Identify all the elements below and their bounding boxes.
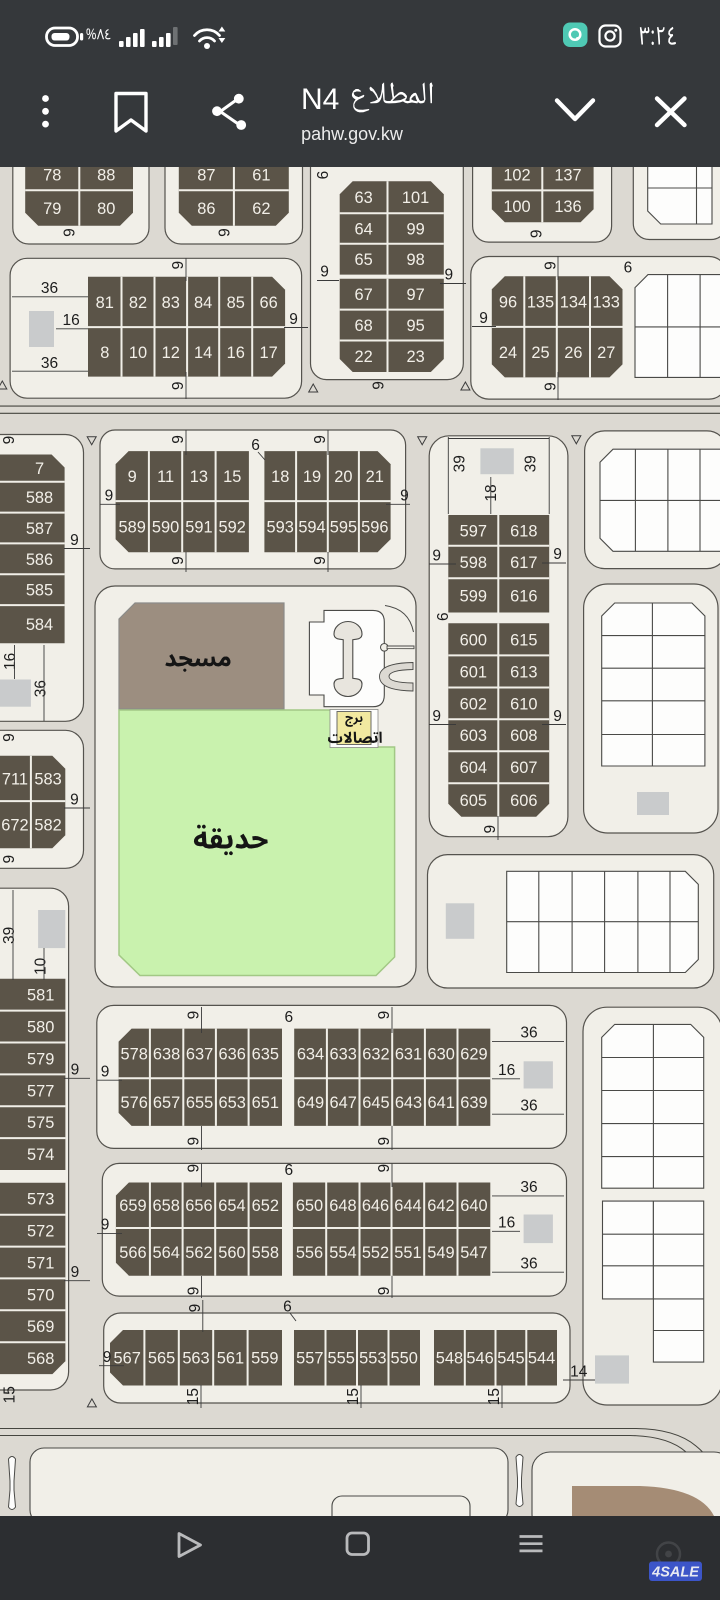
svg-text:9: 9 — [479, 310, 488, 327]
svg-text:15: 15 — [2, 1386, 19, 1403]
svg-text:62: 62 — [252, 200, 270, 218]
svg-text:39: 39 — [452, 455, 469, 472]
svg-text:590: 590 — [152, 519, 179, 537]
svg-text:9: 9 — [71, 1264, 80, 1281]
svg-text:15: 15 — [185, 1388, 202, 1405]
svg-text:22: 22 — [354, 348, 372, 366]
svg-text:134: 134 — [560, 294, 587, 312]
svg-text:19: 19 — [303, 468, 321, 486]
svg-text:560: 560 — [218, 1244, 245, 1262]
svg-text:646: 646 — [362, 1197, 389, 1215]
svg-text:656: 656 — [185, 1197, 212, 1215]
svg-text:565: 565 — [148, 1350, 175, 1368]
svg-text:617: 617 — [510, 554, 537, 572]
svg-text:566: 566 — [119, 1244, 146, 1262]
svg-text:133: 133 — [593, 294, 620, 312]
svg-text:574: 574 — [27, 1146, 54, 1164]
svg-text:9: 9 — [70, 791, 79, 808]
svg-text:631: 631 — [395, 1045, 422, 1063]
svg-text:100: 100 — [503, 198, 530, 216]
svg-text:9: 9 — [170, 381, 187, 390]
svg-text:39: 39 — [1, 927, 18, 944]
svg-text:634: 634 — [297, 1045, 324, 1063]
svg-text:9: 9 — [376, 1287, 393, 1296]
svg-text:87: 87 — [197, 167, 215, 185]
svg-text:82: 82 — [129, 294, 147, 312]
svg-text:9: 9 — [170, 435, 187, 444]
svg-text:639: 639 — [460, 1094, 487, 1112]
svg-text:85: 85 — [227, 294, 245, 312]
svg-text:649: 649 — [297, 1094, 324, 1112]
svg-text:9: 9 — [187, 1304, 204, 1313]
svg-text:23: 23 — [406, 348, 424, 366]
svg-text:9: 9 — [400, 488, 409, 505]
svg-text:14: 14 — [570, 1363, 588, 1380]
svg-text:577: 577 — [27, 1082, 54, 1100]
svg-text:15: 15 — [486, 1388, 503, 1405]
svg-text:554: 554 — [329, 1244, 356, 1262]
svg-text:580: 580 — [27, 1019, 54, 1037]
svg-text:568: 568 — [27, 1350, 54, 1368]
svg-text:608: 608 — [510, 727, 537, 745]
svg-text:615: 615 — [510, 631, 537, 649]
svg-text:98: 98 — [406, 251, 424, 269]
svg-text:136: 136 — [554, 198, 581, 216]
svg-text:546: 546 — [466, 1350, 493, 1368]
svg-text:589: 589 — [119, 519, 146, 537]
svg-text:630: 630 — [428, 1045, 455, 1063]
svg-text:555: 555 — [328, 1350, 355, 1368]
svg-text:558: 558 — [252, 1244, 279, 1262]
svg-text:585: 585 — [26, 582, 53, 600]
svg-text:9: 9 — [432, 708, 441, 725]
svg-text:635: 635 — [252, 1045, 279, 1063]
svg-text:9: 9 — [542, 261, 559, 270]
svg-text:549: 549 — [427, 1244, 454, 1262]
svg-text:613: 613 — [510, 663, 537, 681]
svg-text:551: 551 — [394, 1244, 421, 1262]
svg-text:9: 9 — [289, 311, 298, 328]
svg-text:25: 25 — [531, 344, 549, 362]
svg-text:N4: N4 — [301, 83, 339, 116]
svg-text:26: 26 — [564, 344, 582, 362]
svg-text:562: 562 — [185, 1244, 212, 1262]
svg-text:572: 572 — [27, 1223, 54, 1241]
svg-text:578: 578 — [121, 1045, 148, 1063]
svg-text:9: 9 — [128, 468, 137, 486]
svg-text:36: 36 — [41, 355, 58, 372]
svg-text:21: 21 — [366, 468, 384, 486]
svg-text:632: 632 — [362, 1045, 389, 1063]
svg-text:579: 579 — [27, 1050, 54, 1068]
svg-text:9: 9 — [186, 1011, 203, 1020]
svg-text:593: 593 — [267, 519, 294, 537]
svg-text:644: 644 — [394, 1197, 421, 1215]
svg-text:4SALE: 4SALE — [651, 1565, 700, 1581]
svg-text:9: 9 — [1, 436, 18, 445]
svg-text:596: 596 — [361, 519, 388, 537]
svg-text:9: 9 — [553, 546, 562, 563]
svg-text:648: 648 — [329, 1197, 356, 1215]
svg-text:586: 586 — [26, 551, 53, 569]
svg-text:7: 7 — [35, 460, 44, 478]
svg-text:556: 556 — [296, 1244, 323, 1262]
svg-text:569: 569 — [27, 1318, 54, 1336]
svg-text:14: 14 — [194, 344, 212, 362]
svg-text:64: 64 — [354, 220, 372, 238]
svg-text:16: 16 — [62, 312, 79, 329]
svg-text:564: 564 — [153, 1244, 180, 1262]
svg-text:591: 591 — [185, 519, 212, 537]
svg-text:95: 95 — [406, 317, 424, 335]
svg-text:638: 638 — [153, 1045, 180, 1063]
svg-text:36: 36 — [520, 1025, 537, 1042]
svg-text:80: 80 — [97, 200, 115, 218]
svg-text:18: 18 — [483, 484, 500, 501]
svg-text:547: 547 — [460, 1244, 487, 1262]
svg-text:655: 655 — [186, 1094, 213, 1112]
svg-text:17: 17 — [259, 344, 277, 362]
svg-text:9: 9 — [105, 488, 114, 505]
svg-text:647: 647 — [330, 1094, 357, 1112]
svg-text:645: 645 — [362, 1094, 389, 1112]
svg-text:36: 36 — [41, 280, 58, 297]
svg-text:605: 605 — [460, 792, 487, 810]
svg-text:67: 67 — [354, 286, 372, 304]
svg-text:651: 651 — [252, 1094, 279, 1112]
svg-text:582: 582 — [34, 817, 61, 835]
svg-text:576: 576 — [121, 1094, 148, 1112]
svg-text:629: 629 — [460, 1045, 487, 1063]
svg-text:102: 102 — [503, 167, 530, 184]
svg-text:99: 99 — [406, 220, 424, 238]
svg-text:573: 573 — [27, 1191, 54, 1209]
svg-text:642: 642 — [427, 1197, 454, 1215]
svg-text:636: 636 — [219, 1045, 246, 1063]
svg-text:594: 594 — [298, 519, 325, 537]
svg-text:9: 9 — [103, 1349, 112, 1366]
svg-text:650: 650 — [296, 1197, 323, 1215]
svg-text:96: 96 — [499, 294, 517, 312]
svg-text:672: 672 — [1, 817, 28, 835]
svg-text:61: 61 — [252, 167, 270, 185]
svg-text:653: 653 — [219, 1094, 246, 1112]
svg-text:598: 598 — [460, 554, 487, 572]
svg-text:553: 553 — [359, 1350, 386, 1368]
svg-text:65: 65 — [354, 251, 372, 269]
svg-text:9: 9 — [170, 556, 187, 565]
svg-text:544: 544 — [528, 1350, 555, 1368]
svg-text:602: 602 — [460, 695, 487, 713]
svg-text:78: 78 — [43, 167, 61, 185]
svg-text:6: 6 — [284, 1162, 293, 1179]
svg-text:11: 11 — [157, 468, 174, 486]
svg-text:10: 10 — [33, 957, 50, 975]
svg-text:567: 567 — [114, 1350, 141, 1368]
svg-text:18: 18 — [271, 468, 289, 486]
svg-text:8: 8 — [100, 344, 109, 362]
svg-text:9: 9 — [376, 1011, 393, 1020]
svg-text:643: 643 — [395, 1094, 422, 1112]
svg-text:9: 9 — [376, 1137, 393, 1146]
svg-text:607: 607 — [510, 759, 537, 777]
svg-text:641: 641 — [428, 1094, 455, 1112]
svg-text:86: 86 — [197, 200, 215, 218]
svg-text:9: 9 — [376, 1164, 393, 1173]
svg-text:604: 604 — [460, 759, 487, 777]
svg-text:15: 15 — [223, 468, 241, 486]
svg-text:24: 24 — [499, 344, 517, 362]
svg-text:640: 640 — [460, 1197, 487, 1215]
svg-text:557: 557 — [296, 1350, 323, 1368]
svg-text:588: 588 — [26, 489, 53, 507]
svg-text:599: 599 — [460, 587, 487, 605]
svg-text:571: 571 — [27, 1254, 54, 1272]
svg-text:6: 6 — [624, 259, 633, 276]
svg-text:6: 6 — [435, 612, 452, 621]
svg-text:559: 559 — [251, 1350, 278, 1368]
svg-text:9: 9 — [186, 1137, 203, 1146]
svg-text:101: 101 — [402, 189, 429, 207]
svg-text:637: 637 — [186, 1045, 213, 1063]
svg-text:27: 27 — [597, 344, 615, 362]
svg-text:135: 135 — [527, 294, 554, 312]
svg-text:9: 9 — [101, 1064, 110, 1081]
svg-text:16: 16 — [498, 1062, 515, 1079]
svg-text:88: 88 — [97, 167, 115, 185]
svg-text:16: 16 — [498, 1215, 515, 1232]
svg-text:10: 10 — [129, 344, 147, 362]
svg-text:9: 9 — [320, 264, 329, 281]
svg-text:9: 9 — [1, 733, 18, 742]
svg-text:545: 545 — [497, 1350, 524, 1368]
svg-text:137: 137 — [554, 167, 581, 184]
svg-text:36: 36 — [33, 680, 50, 697]
svg-text:9: 9 — [482, 825, 499, 834]
svg-text:9: 9 — [217, 228, 234, 237]
svg-text:81: 81 — [96, 294, 114, 312]
svg-text:15: 15 — [345, 1388, 362, 1405]
svg-text:36: 36 — [520, 1256, 537, 1273]
svg-text:603: 603 — [460, 727, 487, 745]
svg-text:550: 550 — [391, 1350, 418, 1368]
svg-text:711: 711 — [2, 770, 28, 788]
svg-text:9: 9 — [528, 229, 545, 238]
svg-text:6: 6 — [315, 171, 332, 180]
svg-text:563: 563 — [182, 1350, 209, 1368]
svg-text:36: 36 — [520, 1098, 537, 1115]
svg-text:9: 9 — [432, 547, 441, 564]
svg-text:9: 9 — [186, 1287, 203, 1296]
svg-text:652: 652 — [252, 1197, 279, 1215]
svg-text:633: 633 — [330, 1045, 357, 1063]
svg-text:36: 36 — [520, 1179, 537, 1196]
svg-text:16: 16 — [2, 653, 19, 670]
svg-text:84: 84 — [194, 294, 212, 312]
svg-text:552: 552 — [362, 1244, 389, 1262]
svg-text:561: 561 — [217, 1350, 244, 1368]
svg-text:583: 583 — [34, 770, 61, 788]
svg-text:592: 592 — [219, 519, 246, 537]
svg-text:6: 6 — [251, 437, 260, 454]
svg-text:20: 20 — [334, 468, 352, 486]
svg-text:597: 597 — [460, 522, 487, 540]
svg-text:654: 654 — [218, 1197, 245, 1215]
svg-text:66: 66 — [259, 294, 277, 312]
svg-text:83: 83 — [162, 294, 180, 312]
svg-text:606: 606 — [510, 792, 537, 810]
svg-text:68: 68 — [354, 317, 372, 335]
svg-text:618: 618 — [510, 522, 537, 540]
svg-text:9: 9 — [186, 1164, 203, 1173]
svg-text:570: 570 — [27, 1286, 54, 1304]
svg-text:12: 12 — [162, 344, 180, 362]
svg-text:63: 63 — [354, 189, 372, 207]
svg-text:659: 659 — [119, 1197, 146, 1215]
svg-text:9: 9 — [101, 1217, 110, 1234]
svg-text:16: 16 — [227, 344, 245, 362]
svg-text:9: 9 — [312, 556, 329, 565]
svg-text:9: 9 — [371, 381, 388, 390]
svg-text:9: 9 — [62, 228, 79, 237]
svg-text:610: 610 — [510, 695, 537, 713]
svg-text:97: 97 — [406, 286, 424, 304]
svg-text:9: 9 — [70, 532, 79, 549]
svg-text:pahw.gov.kw: pahw.gov.kw — [301, 124, 404, 144]
svg-text:581: 581 — [27, 987, 54, 1005]
svg-text:9: 9 — [542, 382, 559, 391]
svg-text:657: 657 — [153, 1094, 180, 1112]
svg-text:6: 6 — [284, 1009, 293, 1026]
svg-text:9: 9 — [312, 435, 329, 444]
svg-text:9: 9 — [170, 261, 187, 270]
svg-text:13: 13 — [190, 468, 208, 486]
svg-text:39: 39 — [522, 455, 539, 472]
svg-text:9: 9 — [444, 267, 453, 284]
svg-text:9: 9 — [1, 855, 18, 864]
svg-text:601: 601 — [460, 663, 487, 681]
svg-text:79: 79 — [43, 200, 61, 218]
svg-text:9: 9 — [553, 708, 562, 725]
svg-text:9: 9 — [71, 1062, 80, 1079]
svg-text:587: 587 — [26, 520, 53, 538]
svg-text:595: 595 — [330, 519, 357, 537]
svg-text:6: 6 — [283, 1298, 292, 1315]
svg-text:658: 658 — [153, 1197, 180, 1215]
svg-text:575: 575 — [27, 1114, 54, 1132]
svg-text:548: 548 — [436, 1350, 463, 1368]
svg-text:600: 600 — [460, 631, 487, 649]
svg-text:616: 616 — [510, 587, 537, 605]
svg-text:584: 584 — [26, 616, 53, 634]
